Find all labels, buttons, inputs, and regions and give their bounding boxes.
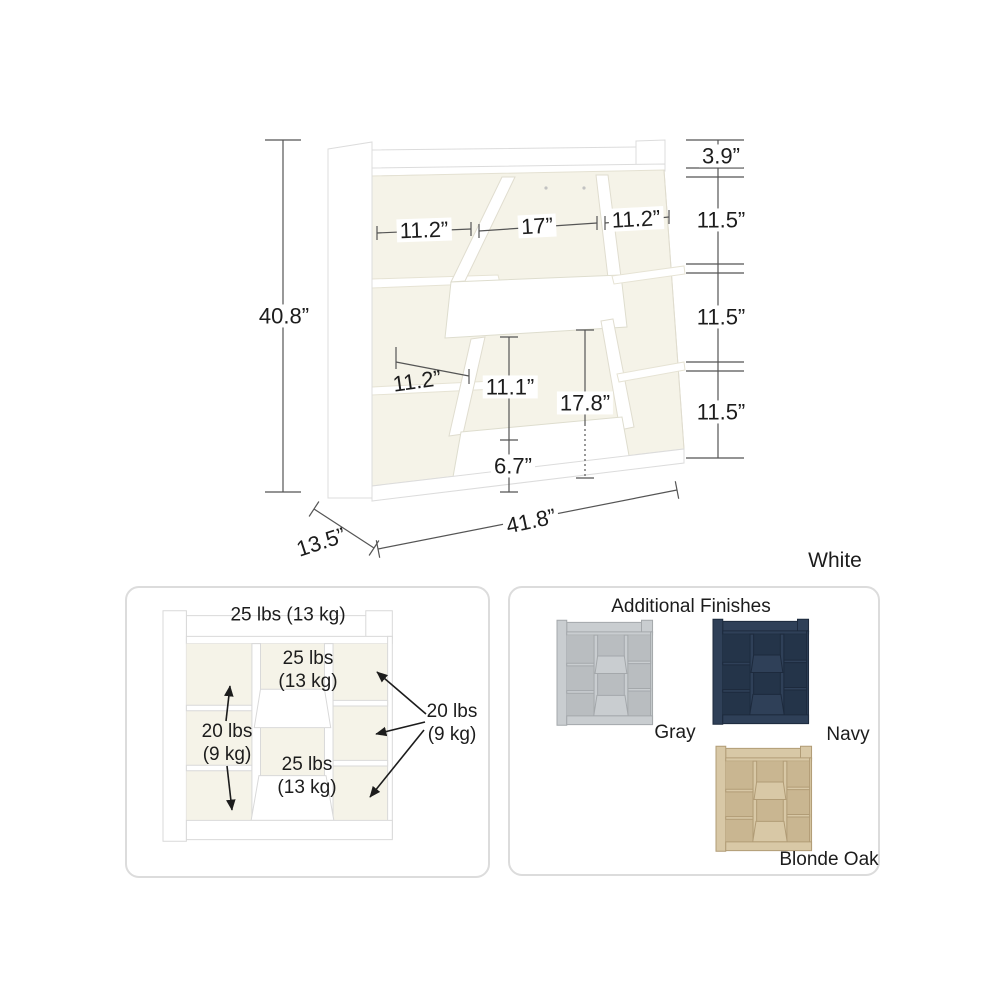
dim-bin-front-height: 6.7”: [491, 454, 535, 477]
dim-top-width-right: 11.2”: [608, 206, 664, 232]
weight-left-shelves-label: 20 lbs (9 kg): [202, 721, 253, 767]
dim-top-width-center: 17”: [518, 213, 557, 238]
dim-right-section-1: 11.5”: [694, 208, 749, 231]
dim-right-section-3: 11.5”: [694, 400, 749, 423]
dim-top-cubby-height: 3.9”: [699, 144, 743, 167]
finish-swatch-navy: [713, 619, 809, 724]
dim-bin-total-height: 17.8”: [557, 391, 613, 414]
finish-swatch-blonde-oak: [716, 746, 812, 851]
weight-lower-bin-label: 25 lbs (13 kg): [277, 754, 336, 800]
dim-bin-opening-height: 11.1”: [483, 375, 538, 398]
weight-right-shelves-label: 20 lbs (9 kg): [427, 701, 478, 747]
finish-label-gray: Gray: [654, 722, 695, 744]
weight-panel-bookcase: [163, 611, 392, 841]
product-dimension-sheet: 40.8” 3.9” 11.5” 11.5” 11.5” 11.2” 17” 1…: [0, 0, 1000, 1000]
finish-label-navy: Navy: [826, 724, 869, 746]
main-bookcase-illustration: [328, 140, 685, 501]
dim-overall-height: 40.8”: [256, 304, 312, 327]
finishes-panel-title: Additional Finishes: [611, 596, 770, 618]
weight-upper-bin-label: 25 lbs (13 kg): [278, 648, 337, 694]
dim-right-section-2: 11.5”: [694, 305, 749, 328]
finish-swatch-gray: [557, 620, 653, 725]
selected-finish-label: White: [808, 549, 862, 573]
finish-label-blonde-oak: Blonde Oak: [779, 849, 878, 871]
weight-top-shelf-label: 25 lbs (13 kg): [230, 605, 345, 628]
dim-top-width-left: 11.2”: [396, 218, 451, 243]
